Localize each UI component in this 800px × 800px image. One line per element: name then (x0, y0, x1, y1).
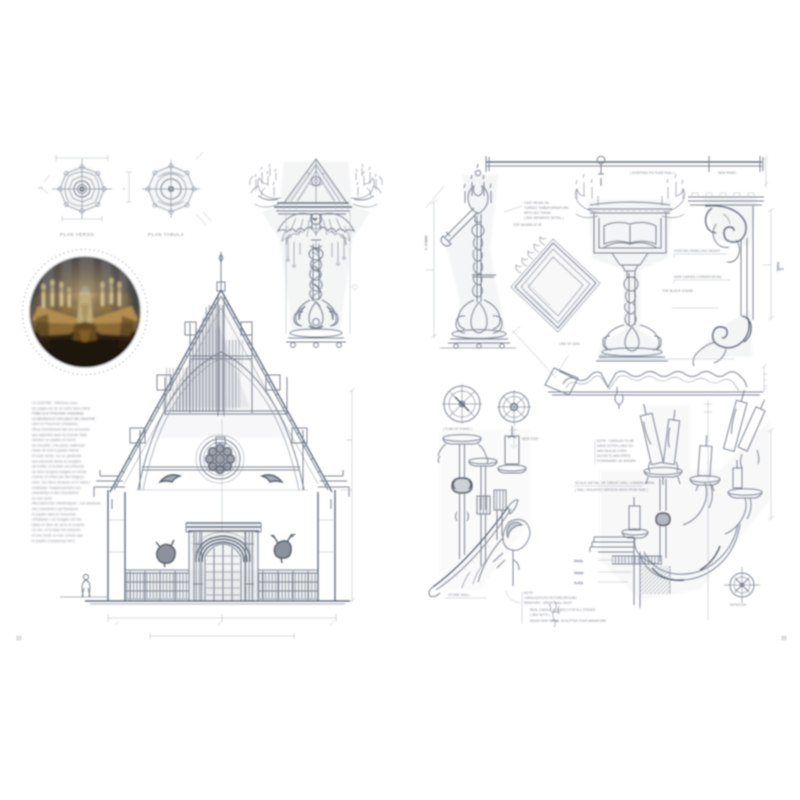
svg-text:10: 10 (16, 636, 22, 642)
svg-text:THE BLACK STAND: THE BLACK STAND (662, 289, 694, 293)
svg-text:PLATE: PLATE (574, 581, 583, 585)
svg-text:LINE OF DAIS: LINE OF DAIS (559, 342, 580, 346)
svg-text:NEW CARVED CORNER DETAIL: NEW CARVED CORNER DETAIL (674, 275, 722, 279)
svg-text:ROTATION: ROTATION (730, 603, 747, 607)
svg-text:FIXING: FIXING (574, 571, 584, 575)
svg-text:TOP SHOWN AT 45: TOP SHOWN AT 45 (513, 223, 542, 227)
svg-text:PANEL: PANEL (776, 262, 780, 272)
svg-text:DAIS STEP: DAIS STEP (599, 354, 617, 358)
svg-text:SCALE DETAIL OF GREAT HALL: SCALE DETAIL OF GREAT HALL CANDELABRA (575, 481, 655, 485)
svg-text:NEW STEP: NEW STEP (522, 437, 539, 441)
svg-text:PLAN TABULA: PLAN TABULA (148, 232, 185, 237)
svg-text:4 - 6 HIGH: 4 - 6 HIGH (424, 236, 428, 250)
svg-text:( PLAN OF STAND ): ( PLAN OF STAND ) (443, 427, 472, 431)
svg-text:EXISTING PANELLING HEIGHT: EXISTING PANELLING HEIGHT (674, 249, 720, 253)
svg-text:( EXISTING PICTURE RAIL ): ( EXISTING PICTURE RAIL ) (630, 171, 674, 175)
svg-text:- STONE WALL -: - STONE WALL - (446, 593, 472, 597)
svg-text:PLAN VERSO: PLAN VERSO (60, 232, 94, 237)
svg-text:33: 33 (781, 636, 787, 642)
svg-text:( WALL MOUNTED VERSION SEEN FR: ( WALL MOUNTED VERSION SEEN FROM SIDE ) (575, 488, 648, 492)
svg-text:PANEL: PANEL (574, 559, 584, 563)
svg-text:NEW PANEL: NEW PANEL (718, 171, 737, 175)
svg-text:2-6: 2-6 (38, 186, 43, 190)
